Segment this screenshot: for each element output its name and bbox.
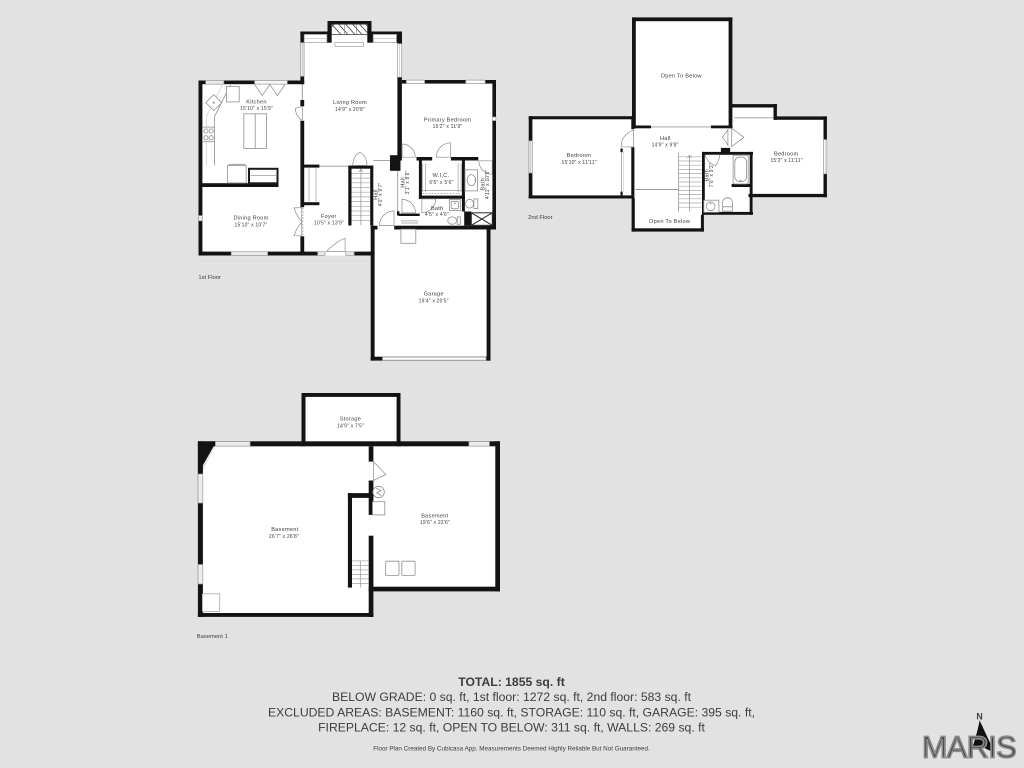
svg-text:4'11" x 10'5": 4'11" x 10'5" <box>485 169 491 199</box>
svg-text:Open To Below: Open To Below <box>649 219 691 225</box>
svg-text:Basement: Basement <box>271 527 298 533</box>
svg-text:Kitchen: Kitchen <box>246 100 266 106</box>
svg-text:Living Room: Living Room <box>333 100 367 106</box>
svg-text:19'4" x 20'5": 19'4" x 20'5" <box>419 298 449 304</box>
svg-text:26'7" x 26'8": 26'7" x 26'8" <box>269 534 299 540</box>
svg-text:MARIS: MARIS <box>922 731 1016 765</box>
svg-text:Primary Bedroom: Primary Bedroom <box>424 118 471 124</box>
svg-text:15'10" x 11'11": 15'10" x 11'11" <box>561 160 596 166</box>
svg-text:15'10" x 15'9": 15'10" x 15'9" <box>240 106 273 112</box>
svg-text:EXCLUDED AREAS: BASEMENT: 1160: EXCLUDED AREAS: BASEMENT: 1160 sq. ft, S… <box>268 706 755 720</box>
svg-text:Garage: Garage <box>424 292 444 298</box>
svg-text:4'0" x 9'7": 4'0" x 9'7" <box>378 182 384 206</box>
svg-text:19'6" x 22'6": 19'6" x 22'6" <box>420 520 450 526</box>
svg-text:14'9" x 9'8": 14'9" x 9'8" <box>652 143 679 149</box>
svg-text:W.I.C.: W.I.C. <box>433 173 450 179</box>
svg-text:Hall: Hall <box>660 136 671 142</box>
svg-text:Foyer: Foyer <box>321 214 337 220</box>
svg-text:4'5" x 4'6": 4'5" x 4'6" <box>425 212 449 218</box>
svg-text:7'6" x 9'3": 7'6" x 9'3" <box>709 163 715 187</box>
svg-text:Bedroom: Bedroom <box>567 153 592 159</box>
svg-text:14'9" x 7'5": 14'9" x 7'5" <box>337 423 364 429</box>
svg-text:Storage: Storage <box>340 417 361 423</box>
svg-text:1st Floor: 1st Floor <box>198 275 221 281</box>
svg-text:6'5" x 5'6": 6'5" x 5'6" <box>429 180 453 186</box>
svg-text:Bedroom: Bedroom <box>774 152 799 158</box>
svg-text:Basement 1: Basement 1 <box>197 634 228 640</box>
svg-text:15'2" x 11'11": 15'2" x 11'11" <box>770 158 802 164</box>
svg-text:TOTAL: 1855 sq. ft: TOTAL: 1855 sq. ft <box>458 675 565 689</box>
svg-text:3'1" x 8'8": 3'1" x 8'8" <box>405 170 411 194</box>
svg-text:Basement: Basement <box>421 513 448 519</box>
svg-text:BELOW GRADE: 0 sq. ft, 1st flo: BELOW GRADE: 0 sq. ft, 1st floor: 1272 s… <box>332 690 692 704</box>
svg-text:15'10" x 10'7": 15'10" x 10'7" <box>234 222 267 228</box>
svg-text:FIREPLACE: 12 sq. ft, OPEN TO: FIREPLACE: 12 sq. ft, OPEN TO BELOW: 311… <box>318 720 705 734</box>
svg-text:2nd Floor: 2nd Floor <box>528 215 553 221</box>
svg-text:Floor Plan Created By Cubicasa: Floor Plan Created By Cubicasa App. Meas… <box>373 746 650 753</box>
svg-text:N: N <box>976 711 982 721</box>
svg-text:15'2" x 11'9": 15'2" x 11'9" <box>433 124 463 130</box>
svg-text:Dining Room: Dining Room <box>233 216 268 222</box>
svg-text:10'5" x 13'9": 10'5" x 13'9" <box>314 221 344 227</box>
svg-text:14'9" x 20'8": 14'9" x 20'8" <box>335 107 365 113</box>
svg-text:Open To Below: Open To Below <box>661 74 703 80</box>
